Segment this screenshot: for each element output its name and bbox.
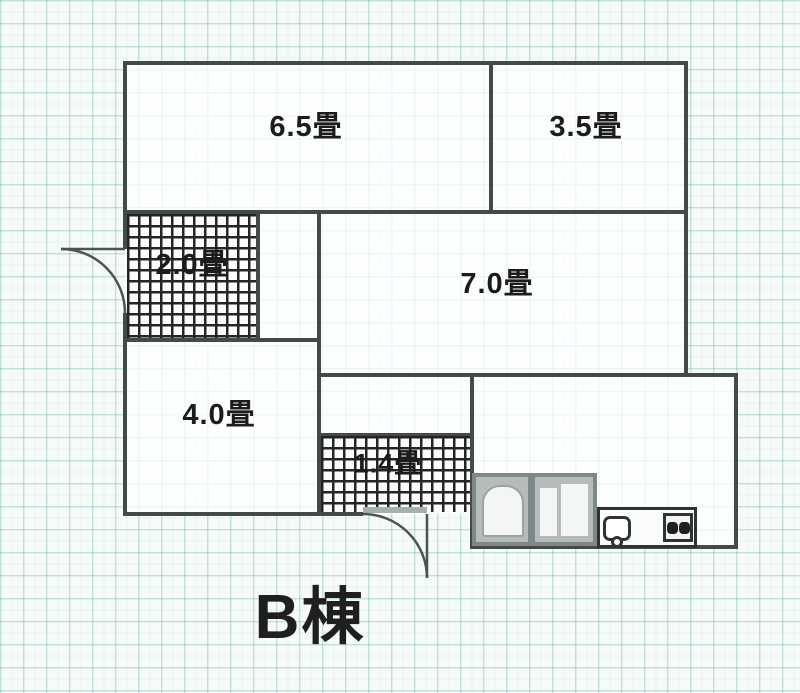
room-label-7-0: 7.0畳 <box>460 260 533 302</box>
building-label: B棟 <box>255 566 366 656</box>
entrance-door-swing-arc-icon <box>61 249 125 313</box>
room-label-6-5: 6.5畳 <box>269 103 342 145</box>
floor-plan-canvas: 6.5畳 3.5畳 2.0畳 7.0畳 4.0畳 1.4畳 B棟 <box>0 0 800 693</box>
room-label-3-5: 3.5畳 <box>549 103 622 145</box>
room-label-2-0: 2.0畳 <box>155 241 228 283</box>
room-label-1-4: 1.4畳 <box>354 442 423 481</box>
door-swing-overlay <box>0 0 800 693</box>
room-label-4-0: 4.0畳 <box>182 391 255 433</box>
back-door-swing-arc-icon <box>363 514 427 578</box>
